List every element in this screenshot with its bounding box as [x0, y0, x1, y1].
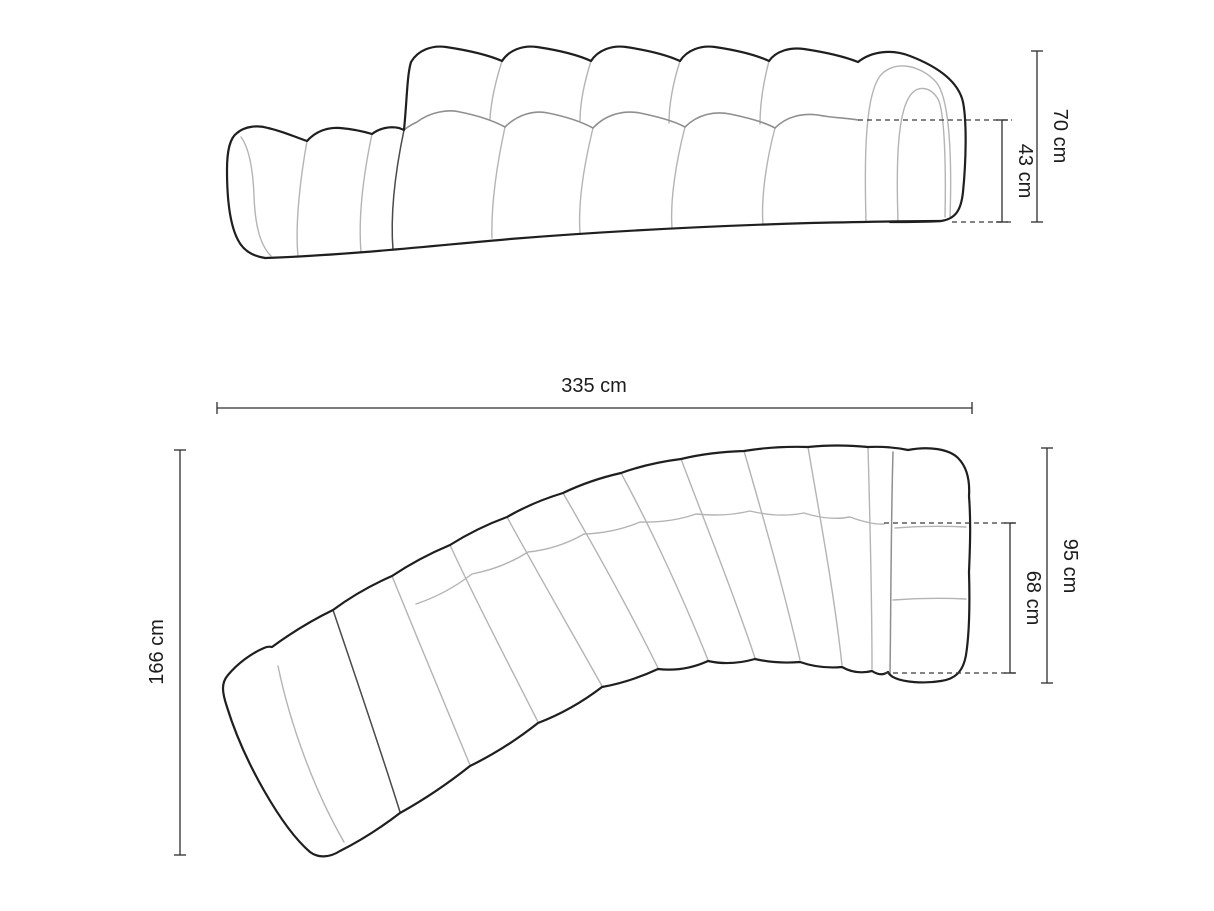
dimensions [174, 51, 1053, 855]
top-view-arm-edge [890, 452, 893, 675]
diagram-svg: 70 cm 43 cm 335 cm 166 cm 95 cm 68 cm [0, 0, 1214, 911]
label-seat-depth: 68 cm [1022, 571, 1044, 625]
label-seat-height: 43 cm [1014, 144, 1036, 198]
dimension-seat-depth [1004, 523, 1016, 673]
top-view-channel-lines [278, 447, 966, 842]
top-view-joints [333, 610, 400, 812]
dimension-end-depth [1041, 448, 1053, 683]
side-baseline [265, 221, 941, 258]
extension-lines [858, 120, 1018, 673]
side-view-channel-lines [241, 61, 951, 256]
side-view-joints [392, 130, 404, 250]
cap-inner-line [278, 666, 344, 842]
chaise-sofa-joint [392, 130, 404, 250]
side-view-seat-contour [404, 111, 858, 130]
sofa-dimension-diagram: 70 cm 43 cm 335 cm 166 cm 95 cm 68 cm [0, 0, 1214, 911]
label-total-width: 335 cm [561, 375, 627, 397]
module-joint-line [333, 610, 400, 812]
top-view [223, 446, 970, 857]
label-side-depth: 166 cm [146, 619, 168, 685]
dimension-side-depth [174, 450, 186, 855]
chaise-end-inner-line [241, 137, 271, 256]
label-total-height: 70 cm [1049, 109, 1071, 163]
side-view [227, 47, 966, 258]
arm-arch-outer [865, 66, 950, 221]
label-end-depth: 95 cm [1059, 539, 1081, 593]
side-view-outline [227, 47, 966, 258]
arm-left-edge [890, 452, 893, 675]
side-silhouette [227, 47, 858, 258]
plan-silhouette [223, 446, 970, 857]
dimension-total-width [217, 402, 972, 414]
top-view-outline [223, 446, 970, 857]
arm-arch-inner [897, 88, 945, 221]
dimension-seat-height [996, 120, 1008, 222]
